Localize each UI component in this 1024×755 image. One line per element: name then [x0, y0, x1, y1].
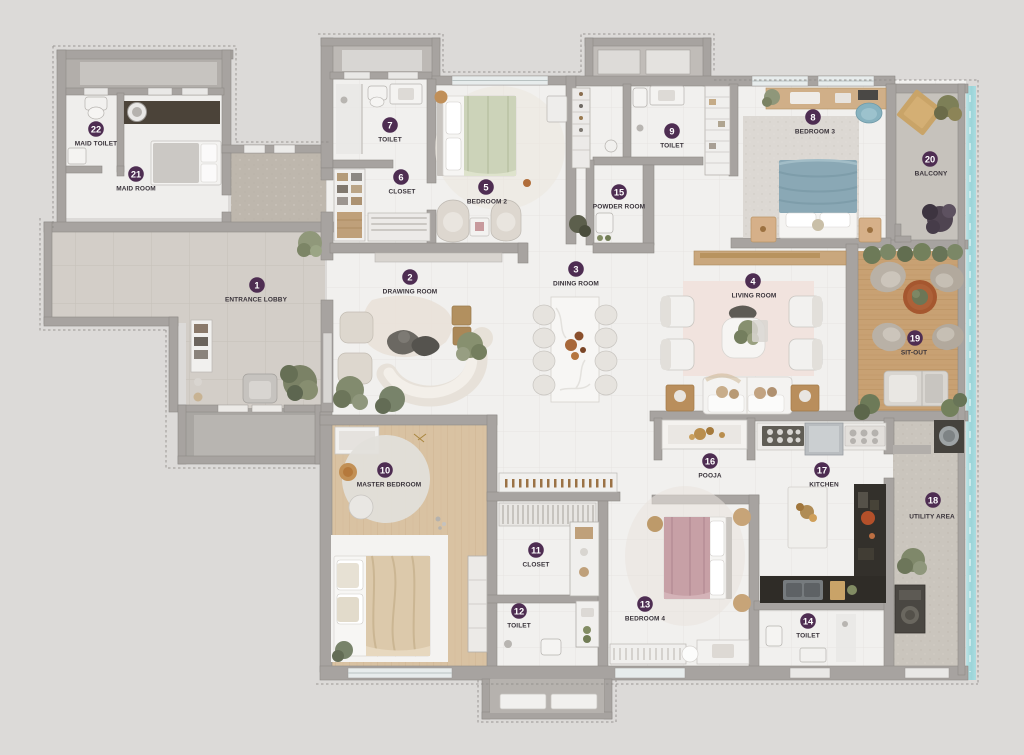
svg-text:12: 12 — [514, 607, 524, 617]
svg-text:6: 6 — [398, 173, 403, 183]
svg-text:TOILET: TOILET — [660, 142, 684, 149]
svg-text:BEDROOM 3: BEDROOM 3 — [795, 128, 836, 135]
svg-text:BEDROOM 4: BEDROOM 4 — [625, 615, 666, 622]
svg-text:UTILITY AREA: UTILITY AREA — [909, 513, 955, 520]
svg-text:19: 19 — [910, 334, 920, 344]
svg-text:3: 3 — [573, 265, 578, 275]
svg-text:LIVING ROOM: LIVING ROOM — [732, 292, 777, 299]
svg-text:DINING ROOM: DINING ROOM — [553, 280, 599, 287]
svg-text:15: 15 — [614, 188, 624, 198]
svg-text:2: 2 — [407, 273, 412, 283]
svg-text:18: 18 — [928, 496, 938, 506]
svg-text:17: 17 — [817, 466, 827, 476]
svg-text:DRAWING ROOM: DRAWING ROOM — [383, 288, 438, 295]
svg-text:9: 9 — [669, 127, 674, 137]
svg-text:POWDER ROOM: POWDER ROOM — [593, 203, 645, 210]
svg-text:10: 10 — [380, 466, 390, 476]
svg-text:21: 21 — [131, 170, 141, 180]
svg-text:TOILET: TOILET — [378, 136, 402, 143]
svg-text:4: 4 — [750, 277, 756, 287]
svg-text:8: 8 — [810, 113, 815, 123]
svg-text:7: 7 — [387, 121, 392, 131]
svg-text:MAID ROOM: MAID ROOM — [116, 185, 156, 192]
svg-text:BALCONY: BALCONY — [915, 170, 948, 177]
svg-text:KITCHEN: KITCHEN — [809, 481, 839, 488]
svg-text:20: 20 — [925, 155, 935, 165]
svg-text:POOJA: POOJA — [698, 472, 721, 479]
svg-text:TOILET: TOILET — [507, 622, 531, 629]
svg-text:SIT-OUT: SIT-OUT — [901, 349, 927, 356]
svg-text:5: 5 — [483, 183, 488, 193]
svg-text:TOILET: TOILET — [796, 632, 820, 639]
svg-text:ENTRANCE LOBBY: ENTRANCE LOBBY — [225, 296, 288, 303]
svg-text:22: 22 — [91, 125, 101, 135]
svg-text:CLOSET: CLOSET — [389, 188, 416, 195]
svg-text:CLOSET: CLOSET — [523, 561, 550, 568]
svg-text:14: 14 — [803, 617, 814, 627]
svg-text:MASTER BEDROOM: MASTER BEDROOM — [357, 481, 422, 488]
svg-text:BEDROOM 2: BEDROOM 2 — [467, 198, 508, 205]
svg-text:16: 16 — [705, 457, 715, 467]
svg-text:MAID TOILET: MAID TOILET — [75, 140, 118, 147]
svg-text:13: 13 — [640, 600, 650, 610]
svg-text:1: 1 — [254, 281, 259, 291]
svg-text:11: 11 — [531, 546, 541, 556]
